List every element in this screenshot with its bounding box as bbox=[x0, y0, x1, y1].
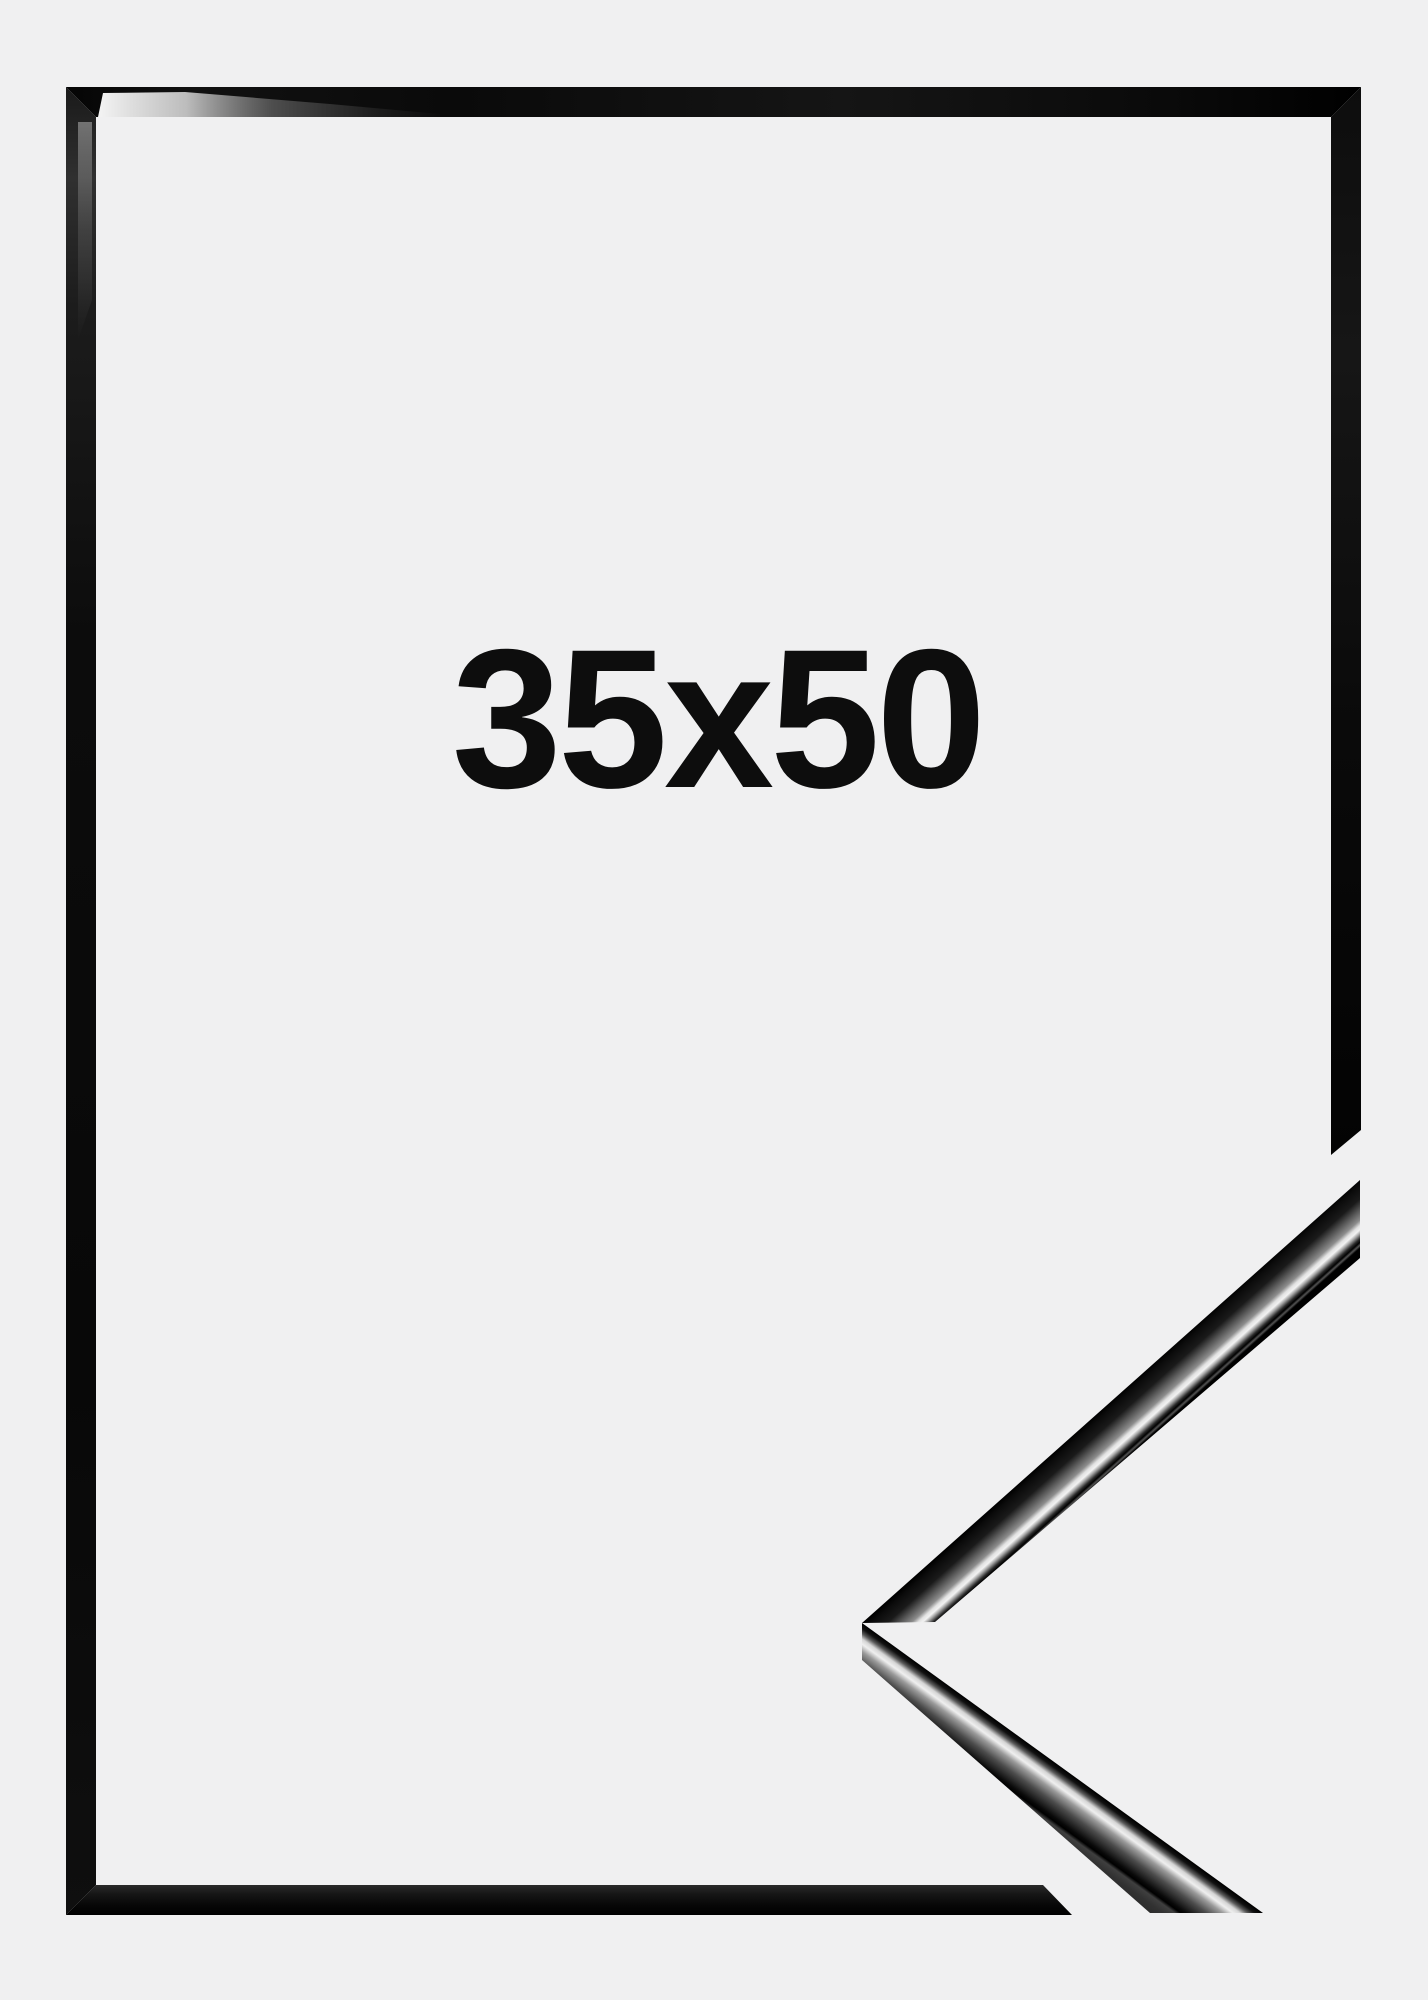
size-label: 35x50 bbox=[452, 608, 983, 829]
frame-left-bar bbox=[66, 87, 96, 1915]
background bbox=[0, 0, 1428, 2000]
frame-right-bar bbox=[1331, 87, 1361, 1155]
frame-product-image: 35x50 bbox=[0, 0, 1428, 2000]
frame-bottom-bar bbox=[66, 1885, 1072, 1915]
product-photo: 35x50 bbox=[0, 0, 1428, 2000]
